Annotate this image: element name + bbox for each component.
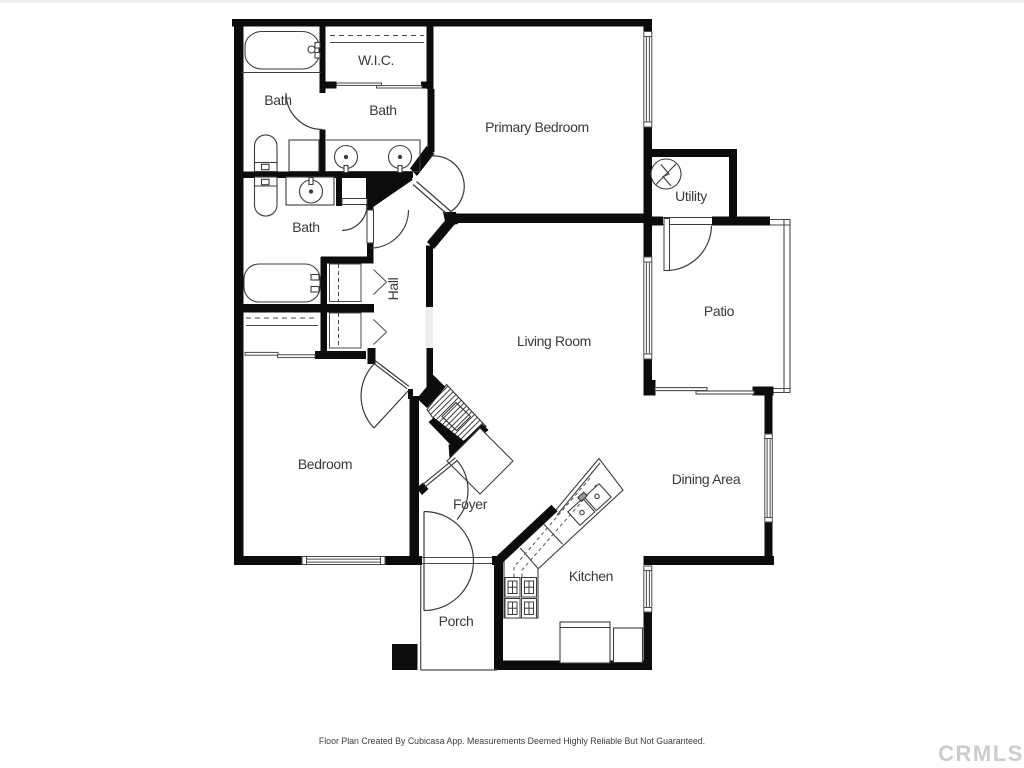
svg-text:Floor Plan Created By Cubicasa: Floor Plan Created By Cubicasa App. Meas… (319, 736, 705, 746)
svg-text:Bath: Bath (292, 219, 319, 235)
svg-text:Porch: Porch (439, 613, 474, 629)
svg-text:Dining Area: Dining Area (672, 471, 741, 487)
svg-text:W.I.C.: W.I.C. (358, 52, 394, 68)
svg-text:Kitchen: Kitchen (569, 568, 613, 584)
svg-text:Primary Bedroom: Primary Bedroom (485, 119, 589, 135)
svg-text:Bath: Bath (369, 102, 396, 118)
svg-text:Patio: Patio (704, 303, 735, 319)
svg-text:Utility: Utility (675, 188, 707, 204)
svg-text:Bedroom: Bedroom (298, 456, 352, 472)
svg-text:Hall: Hall (385, 277, 401, 300)
svg-text:Foyer: Foyer (453, 496, 488, 512)
svg-text:Living Room: Living Room (517, 333, 591, 349)
svg-text:CRMLS: CRMLS (938, 741, 1024, 766)
svg-text:Bath: Bath (264, 92, 291, 108)
